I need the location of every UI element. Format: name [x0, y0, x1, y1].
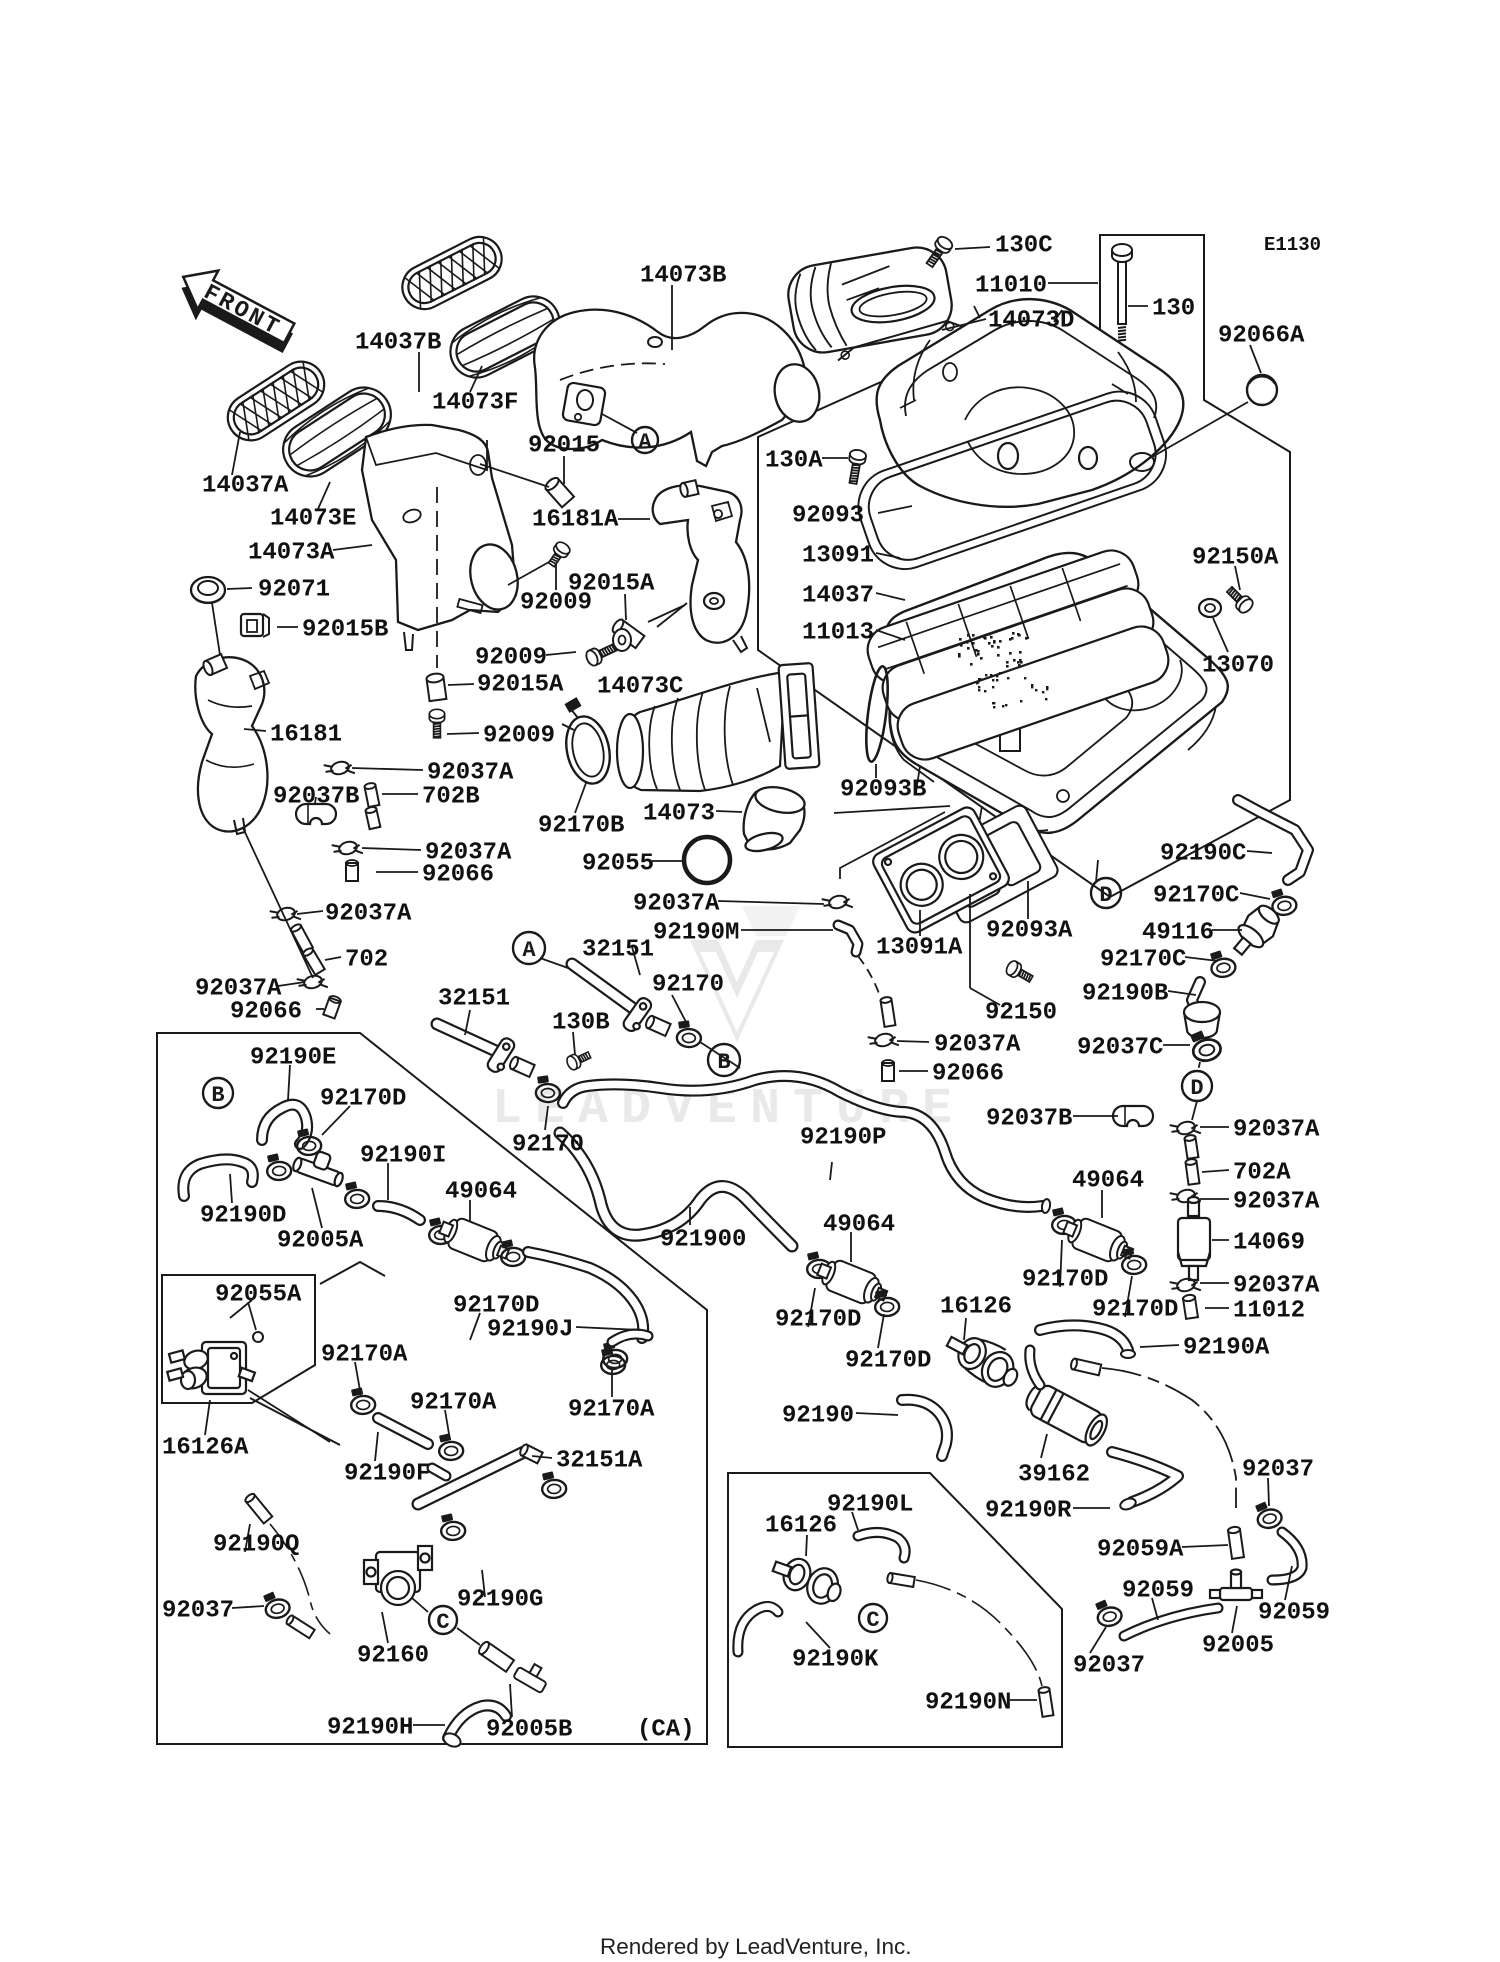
svg-text:92170A: 92170A: [410, 1390, 497, 1417]
svg-text:92037A: 92037A: [325, 901, 412, 928]
svg-text:92190A: 92190A: [1183, 1335, 1270, 1362]
svg-text:14037: 14037: [802, 583, 874, 610]
svg-text:14073D: 14073D: [988, 308, 1074, 335]
svg-text:92037B: 92037B: [273, 784, 359, 811]
svg-text:702: 702: [345, 947, 388, 974]
svg-text:92190Q: 92190Q: [213, 1532, 299, 1559]
svg-text:32151A: 32151A: [556, 1448, 643, 1475]
svg-text:39162: 39162: [1018, 1462, 1090, 1489]
svg-text:92170A: 92170A: [321, 1342, 408, 1369]
svg-text:11010: 11010: [975, 273, 1047, 300]
svg-text:92037A: 92037A: [1233, 1273, 1320, 1300]
svg-text:921900: 921900: [660, 1227, 746, 1254]
svg-text:92190K: 92190K: [792, 1647, 879, 1674]
svg-text:92059: 92059: [1258, 1600, 1330, 1627]
svg-text:92093A: 92093A: [986, 918, 1073, 945]
svg-text:130C: 130C: [995, 233, 1053, 260]
svg-text:92066: 92066: [422, 862, 494, 889]
svg-text:92190F: 92190F: [344, 1461, 430, 1488]
svg-text:92015A: 92015A: [477, 672, 564, 699]
svg-text:14073: 14073: [643, 801, 715, 828]
svg-text:92093B: 92093B: [840, 777, 926, 804]
svg-text:92170D: 92170D: [453, 1293, 539, 1320]
svg-text:92190C: 92190C: [1160, 841, 1246, 868]
svg-text:14073B: 14073B: [640, 263, 726, 290]
svg-text:92066A: 92066A: [1218, 323, 1305, 350]
svg-text:32151: 32151: [582, 937, 654, 964]
svg-text:92055: 92055: [582, 851, 654, 878]
svg-text:92093: 92093: [792, 503, 864, 530]
svg-text:49064: 49064: [445, 1179, 517, 1206]
svg-text:14073F: 14073F: [432, 390, 518, 417]
svg-text:92170D: 92170D: [1022, 1267, 1108, 1294]
svg-text:92170C: 92170C: [1153, 883, 1239, 910]
svg-text:Rendered by LeadVenture, Inc.: Rendered by LeadVenture, Inc.: [600, 1934, 911, 1959]
svg-text:16126: 16126: [940, 1294, 1012, 1321]
svg-text:92037: 92037: [162, 1598, 234, 1625]
svg-text:92190E: 92190E: [250, 1045, 336, 1072]
svg-text:49064: 49064: [1072, 1168, 1144, 1195]
svg-text:A: A: [522, 938, 536, 963]
svg-text:92066: 92066: [932, 1061, 1004, 1088]
svg-text:92059: 92059: [1122, 1578, 1194, 1605]
svg-text:130: 130: [1152, 296, 1195, 323]
svg-text:92190B: 92190B: [1082, 981, 1168, 1008]
svg-text:92015: 92015: [528, 433, 600, 460]
svg-text:92190L: 92190L: [827, 1492, 913, 1519]
svg-text:92190D: 92190D: [200, 1203, 286, 1230]
svg-text:92055A: 92055A: [215, 1282, 302, 1309]
svg-text:13091A: 13091A: [876, 935, 963, 962]
svg-text:702A: 702A: [1233, 1160, 1291, 1187]
svg-text:92190I: 92190I: [360, 1143, 446, 1170]
svg-text:92170D: 92170D: [775, 1307, 861, 1334]
svg-text:92059A: 92059A: [1097, 1537, 1184, 1564]
svg-text:92170D: 92170D: [845, 1348, 931, 1375]
svg-text:14073E: 14073E: [270, 506, 356, 533]
svg-text:702B: 702B: [422, 784, 480, 811]
svg-text:92037A: 92037A: [1233, 1189, 1320, 1216]
svg-text:92190: 92190: [782, 1403, 854, 1430]
svg-text:16181: 16181: [270, 722, 342, 749]
svg-text:B: B: [717, 1050, 730, 1075]
svg-text:14069: 14069: [1233, 1230, 1305, 1257]
svg-text:C: C: [866, 1608, 879, 1633]
svg-text:92170D: 92170D: [320, 1086, 406, 1113]
svg-text:92037A: 92037A: [934, 1032, 1021, 1059]
svg-text:92170: 92170: [512, 1132, 584, 1159]
svg-text:13091: 13091: [802, 543, 874, 570]
svg-text:11012: 11012: [1233, 1298, 1305, 1325]
svg-text:13070: 13070: [1202, 653, 1274, 680]
svg-text:49116: 49116: [1142, 920, 1214, 947]
svg-text:92037A: 92037A: [427, 760, 514, 787]
svg-text:D: D: [1099, 883, 1112, 908]
svg-text:130B: 130B: [552, 1010, 610, 1037]
svg-text:92037A: 92037A: [1233, 1117, 1320, 1144]
svg-text:C: C: [436, 1610, 449, 1635]
svg-text:92037B: 92037B: [986, 1106, 1072, 1133]
svg-text:E1130: E1130: [1264, 234, 1321, 256]
svg-text:92037C: 92037C: [1077, 1035, 1163, 1062]
svg-text:92066: 92066: [230, 999, 302, 1026]
svg-text:92005: 92005: [1202, 1633, 1274, 1660]
svg-text:B: B: [211, 1083, 224, 1108]
svg-text:(CA): (CA): [637, 1717, 695, 1744]
svg-text:92190J: 92190J: [487, 1317, 573, 1344]
svg-text:92170C: 92170C: [1100, 947, 1186, 974]
svg-text:92190M: 92190M: [653, 920, 739, 947]
svg-text:92015B: 92015B: [302, 617, 388, 644]
svg-text:92160: 92160: [357, 1643, 429, 1670]
svg-text:32151: 32151: [438, 986, 510, 1013]
svg-text:92190G: 92190G: [457, 1587, 543, 1614]
svg-text:14037A: 14037A: [202, 473, 289, 500]
svg-text:92150: 92150: [985, 1000, 1057, 1027]
svg-text:49064: 49064: [823, 1212, 895, 1239]
svg-text:92170A: 92170A: [568, 1397, 655, 1424]
svg-text:92190P: 92190P: [800, 1125, 886, 1152]
svg-text:130A: 130A: [765, 448, 823, 475]
svg-text:14037B: 14037B: [355, 330, 441, 357]
svg-text:92005B: 92005B: [486, 1717, 572, 1744]
svg-text:92190H: 92190H: [327, 1715, 413, 1742]
svg-text:92170: 92170: [652, 972, 724, 999]
svg-text:16181A: 16181A: [532, 507, 619, 534]
svg-text:11013: 11013: [802, 620, 874, 647]
svg-text:92190N: 92190N: [925, 1690, 1011, 1717]
svg-text:92071: 92071: [258, 577, 330, 604]
svg-text:A: A: [638, 430, 652, 455]
svg-text:D: D: [1190, 1076, 1203, 1101]
svg-text:14073A: 14073A: [248, 540, 335, 567]
svg-text:92037A: 92037A: [633, 891, 720, 918]
svg-text:92009: 92009: [483, 723, 555, 750]
svg-text:92170B: 92170B: [538, 813, 624, 840]
svg-text:92190R: 92190R: [985, 1498, 1072, 1525]
svg-text:16126A: 16126A: [162, 1435, 249, 1462]
svg-text:92009: 92009: [520, 590, 592, 617]
svg-text:92037: 92037: [1073, 1653, 1145, 1680]
svg-text:92009: 92009: [475, 645, 547, 672]
svg-text:14073C: 14073C: [597, 674, 683, 701]
svg-text:92150A: 92150A: [1192, 545, 1279, 572]
svg-text:92005A: 92005A: [277, 1228, 364, 1255]
svg-text:92037: 92037: [1242, 1457, 1314, 1484]
svg-text:92170D: 92170D: [1092, 1297, 1178, 1324]
